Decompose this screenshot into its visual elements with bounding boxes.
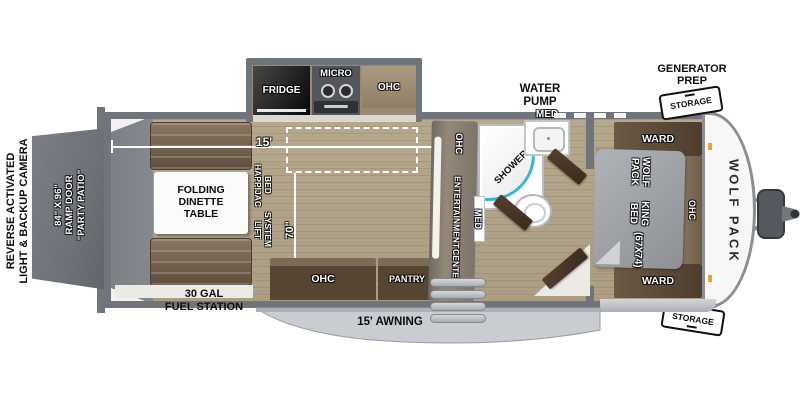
dinette-table: FOLDING DINETTE TABLE	[154, 172, 248, 234]
length-dim-tick-left	[111, 140, 113, 153]
kitchen-ohc: OHC	[362, 66, 416, 108]
fuel-station-label: 30 GAL FUEL STATION	[144, 287, 264, 315]
floorplan-image: REVERSE ACTIVATED LIGHT & BACKUP CAMERA …	[0, 0, 800, 400]
bath-bedroom-wall	[586, 119, 594, 169]
ramp-door-label: 84" X 96" RAMP DOOR "PARTY PATIO"	[50, 130, 90, 280]
dinette-bench-bottom	[150, 238, 252, 286]
cap-marker	[708, 143, 712, 150]
propane-cover	[758, 190, 784, 238]
king-bed-label: WOLF PACK KING BED (67X74)	[626, 150, 651, 269]
happijac-bed-outline	[286, 127, 418, 173]
kitchen-slideout: FRIDGE MICRO OHC	[246, 58, 422, 122]
sink-icon	[533, 127, 565, 152]
bath-vanity	[524, 120, 570, 156]
med-side-label: MED	[468, 198, 488, 240]
generator-prep-label: GENERATOR PREP	[644, 62, 740, 88]
bedroom-window	[554, 113, 626, 118]
stove-burner-icon	[321, 84, 335, 98]
micro-stove: MICRO	[312, 66, 360, 115]
oven-front	[314, 101, 358, 113]
brand-logo: WOLF PACK	[727, 159, 742, 264]
body-skirt	[600, 299, 716, 312]
rear-camera-note: REVERSE ACTIVATED LIGHT & BACKUP CAMERA	[0, 116, 37, 306]
water-pump-label: WATER PUMP	[500, 82, 580, 110]
cap-marker	[708, 275, 712, 282]
blanket-fold	[596, 240, 621, 265]
fridge: FRIDGE	[253, 66, 310, 115]
fridge-handle	[257, 109, 306, 112]
stove-burner-icon	[339, 84, 353, 98]
ramp-door: 84" X 96" RAMP DOOR "PARTY PATIO"	[32, 128, 108, 290]
length-dim-label: 15'	[244, 134, 284, 150]
entry-steps	[430, 278, 486, 326]
king-bed: WOLF PACK KING BED (67X74)	[592, 149, 685, 269]
happijac-label: HAPPIJAC BED LIFT SYSTEM	[250, 162, 276, 250]
front-cap: WOLF PACK	[702, 112, 756, 308]
bottom-ohc: OHC	[270, 258, 376, 300]
kitchen-counter	[253, 115, 416, 122]
bed-dim-label: 70"	[282, 212, 298, 248]
ward-bottom: WARD	[614, 264, 702, 298]
